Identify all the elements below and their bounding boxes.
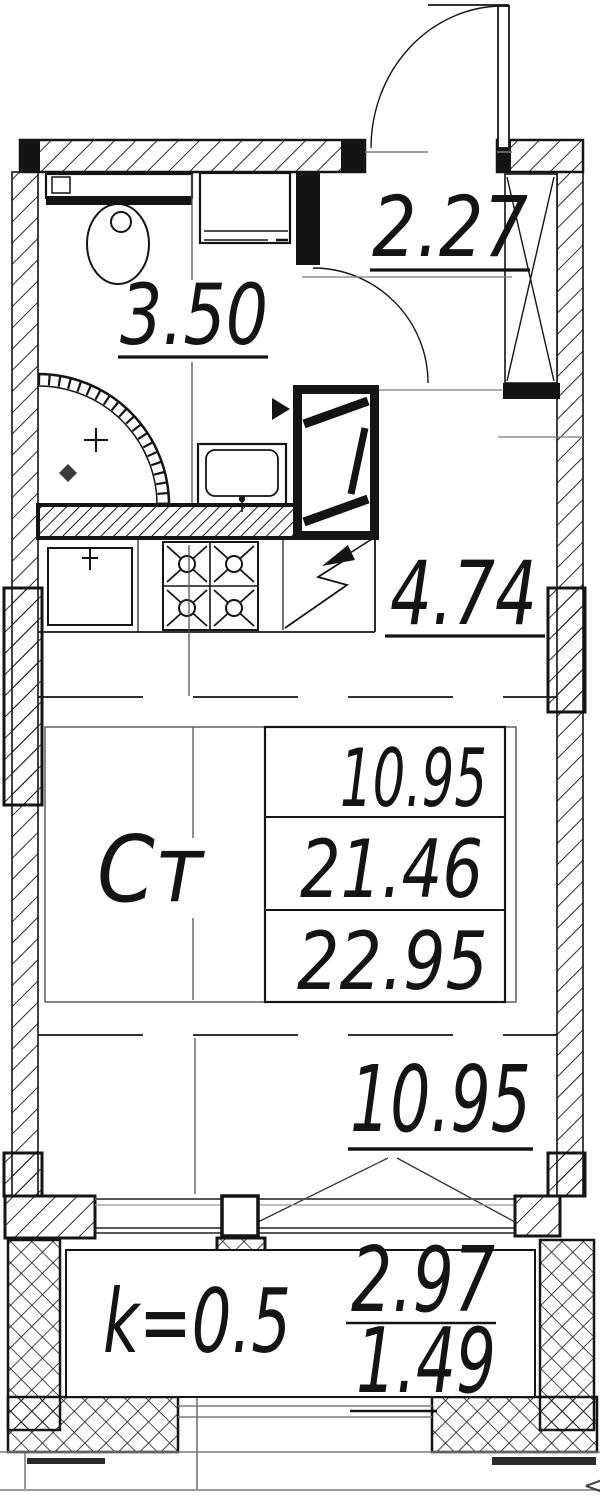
area-table: 10.95 21.46 22.95 — [265, 727, 505, 1008]
stove — [163, 542, 258, 630]
floor-plan-drawing: 10.95 21.46 22.95 2.27 3.50 4.74 Ст 10.9… — [0, 0, 600, 1497]
table-value-apartment-area: 21.46 — [300, 823, 483, 916]
wall-cap — [341, 140, 365, 172]
table-value-living-area: 10.95 — [340, 732, 487, 825]
bathroom-area-label: 3.50 — [120, 266, 268, 364]
window-side-wall — [515, 1196, 560, 1236]
kitchen-area-label: 4.74 — [390, 542, 537, 645]
window-mullion-post — [222, 1196, 258, 1236]
top-wall-left — [20, 140, 365, 172]
window-side-wall — [5, 1196, 95, 1238]
hallway-area-label: 2.27 — [372, 178, 528, 276]
vent-shaft-cap — [503, 383, 560, 399]
bathroom-bottom-wall — [38, 505, 296, 538]
balcony-wall-bottom-left — [8, 1397, 178, 1452]
room-area-label: 10.95 — [350, 1046, 531, 1153]
entrance-door-leaf — [498, 6, 509, 148]
right-pilaster — [548, 588, 585, 712]
wall-cap — [20, 140, 40, 172]
edge-mark: < — [583, 1471, 600, 1497]
balcony-area-reduced-label: 1.49 — [356, 1309, 496, 1414]
dimension-bar — [492, 1457, 596, 1465]
bathroom-partition-wall — [296, 172, 320, 265]
right-pilaster-lower — [548, 1153, 585, 1196]
left-pilaster-lower — [4, 1153, 42, 1196]
balcony-coefficient-label: k=0.5 — [103, 1270, 291, 1373]
table-value-total-area: 22.95 — [297, 915, 488, 1008]
dimension-bar — [27, 1458, 105, 1464]
studio-label: Ст — [97, 816, 205, 923]
left-pilaster — [4, 588, 42, 805]
floor-plan: 10.95 21.46 22.95 2.27 3.50 4.74 Ст 10.9… — [0, 0, 600, 1497]
